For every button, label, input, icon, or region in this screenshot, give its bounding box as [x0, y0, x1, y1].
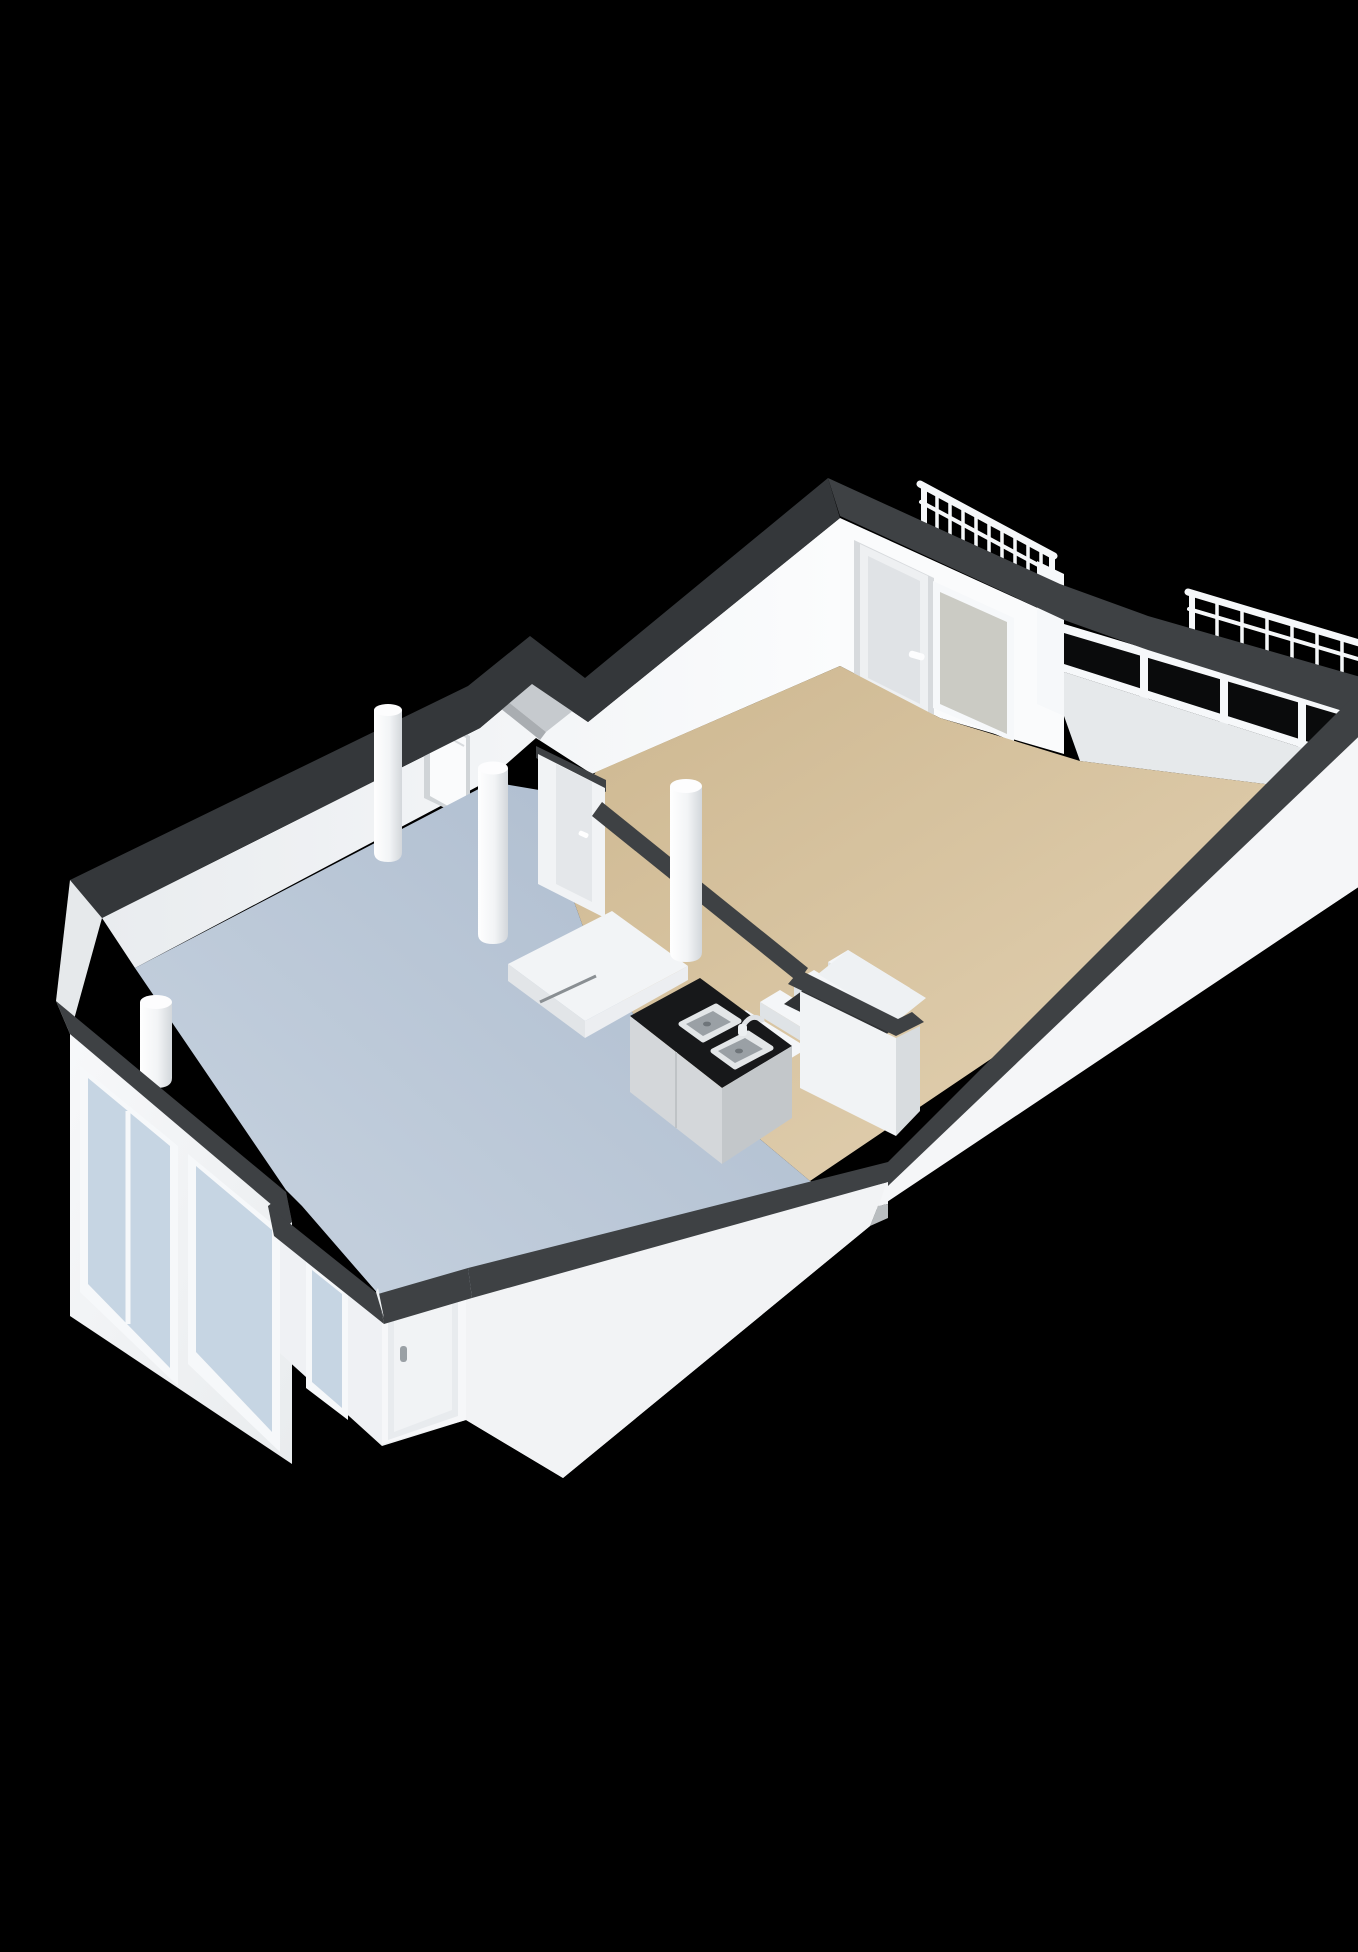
- round-column-1: [374, 704, 402, 862]
- entry-door-handle: [400, 1346, 407, 1362]
- round-column-4: [140, 995, 172, 1088]
- floorplan-view[interactable]: [40, 16, 1358, 1936]
- round-column-3: [670, 779, 702, 962]
- round-column-2: [478, 762, 508, 945]
